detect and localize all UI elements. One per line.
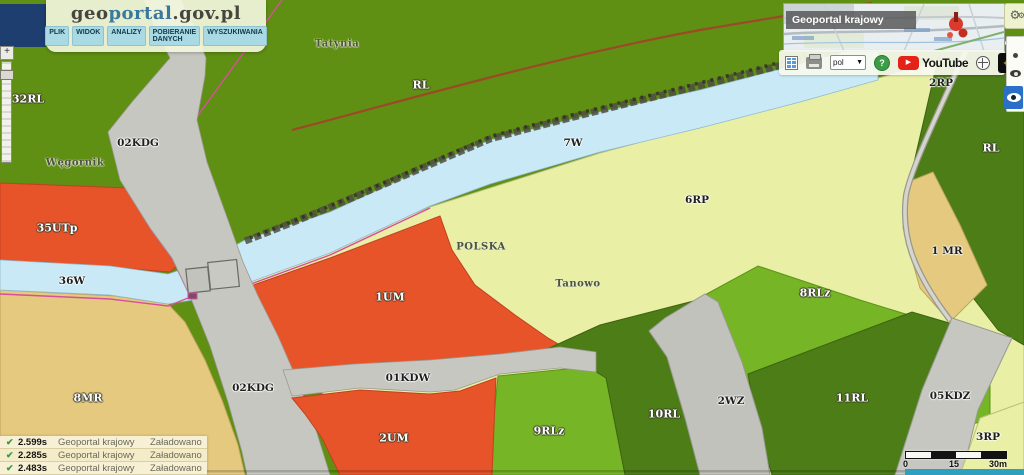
scale-tick-0: 0 xyxy=(903,459,908,469)
print-icon[interactable] xyxy=(806,57,822,69)
eye-icon-white xyxy=(1007,93,1021,102)
load-time: 2.285s xyxy=(18,450,58,461)
load-time: 2.599s xyxy=(18,437,58,448)
status-log-panel: ✔ 2.599s Geoportal krajowy Załadowano ✔ … xyxy=(0,436,207,475)
corner-panel xyxy=(0,4,46,47)
chevron-down-icon: ▼ xyxy=(856,59,863,66)
logo-part-gov: .gov.pl xyxy=(172,3,241,24)
check-icon: ✔ xyxy=(6,450,18,461)
logo-part-portal: portal xyxy=(108,3,172,24)
zoom-slider-handle[interactable] xyxy=(0,70,14,80)
minimap-title: Geoportal krajowy xyxy=(786,11,916,29)
geoportal-app: 32RLWęgornik02KDG35UTp36W8MRTatyniaRL1UM… xyxy=(0,0,1024,475)
collapse-dot-button[interactable] xyxy=(1013,53,1018,58)
youtube-label: YouTube xyxy=(922,56,968,70)
menu-item-plik[interactable]: PLIK xyxy=(45,26,69,46)
menu-item-widok[interactable]: WIDOK xyxy=(72,26,104,46)
menu-item-analizy[interactable]: ANALIZY xyxy=(107,26,145,46)
logo-part-geo: geo xyxy=(71,3,109,24)
main-menu: PLIKWIDOKANALIZYPOBIERANIE DANYCHWYSZUKI… xyxy=(46,26,266,46)
menu-item-pobieranie-danych[interactable]: POBIERANIE DANYCH xyxy=(149,26,201,46)
language-value: pol xyxy=(833,58,844,67)
layer-source: Geoportal krajowy xyxy=(58,437,150,448)
layer-eye-icon[interactable] xyxy=(1010,70,1021,77)
globe-icon[interactable] xyxy=(976,56,990,70)
map-toolbar: pol ▼ ? ▶ YouTube + xyxy=(779,50,1005,75)
active-visibility-button[interactable] xyxy=(1004,86,1023,109)
zoom-control: + xyxy=(0,46,13,168)
zoom-in-button[interactable]: + xyxy=(0,46,14,60)
language-select[interactable]: pol ▼ xyxy=(830,55,866,70)
layer-source: Geoportal krajowy xyxy=(58,450,150,461)
report-icon[interactable] xyxy=(785,56,798,70)
load-time: 2.483s xyxy=(18,463,58,474)
settings-gears-button[interactable]: ⚙ ⚙ xyxy=(1004,3,1024,29)
scale-tick-15: 15 xyxy=(949,459,959,469)
status-row: ✔ 2.483s Geoportal krajowy Załadowano xyxy=(0,462,207,475)
header-panel: geoportal.gov.pl PLIKWIDOKANALIZYPOBIERA… xyxy=(46,0,266,52)
bottom-teal-strip xyxy=(905,469,1024,475)
help-icon[interactable]: ? xyxy=(874,55,890,71)
scale-segments xyxy=(905,451,1007,459)
geoportal-logo[interactable]: geoportal.gov.pl xyxy=(46,0,266,24)
load-state: Załadowano xyxy=(150,463,202,474)
status-row: ✔ 2.285s Geoportal krajowy Załadowano xyxy=(0,449,207,462)
youtube-link[interactable]: ▶ YouTube xyxy=(898,56,968,70)
layer-source: Geoportal krajowy xyxy=(58,463,150,474)
check-icon: ✔ xyxy=(6,463,18,474)
overview-minimap[interactable]: Geoportal krajowy xyxy=(783,3,1005,52)
load-state: Załadowano xyxy=(150,437,202,448)
load-state: Załadowano xyxy=(150,450,202,461)
scale-tick-30: 30m xyxy=(989,459,1007,469)
check-icon: ✔ xyxy=(6,437,18,448)
youtube-play-icon: ▶ xyxy=(898,56,919,70)
scale-bar: 0 15 30m xyxy=(897,447,1015,469)
menu-item-wyszukiwania[interactable]: WYSZUKIWANIA xyxy=(203,26,267,46)
status-row: ✔ 2.599s Geoportal krajowy Załadowano xyxy=(0,436,207,449)
gear-small-icon: ⚙ xyxy=(1018,5,1024,27)
